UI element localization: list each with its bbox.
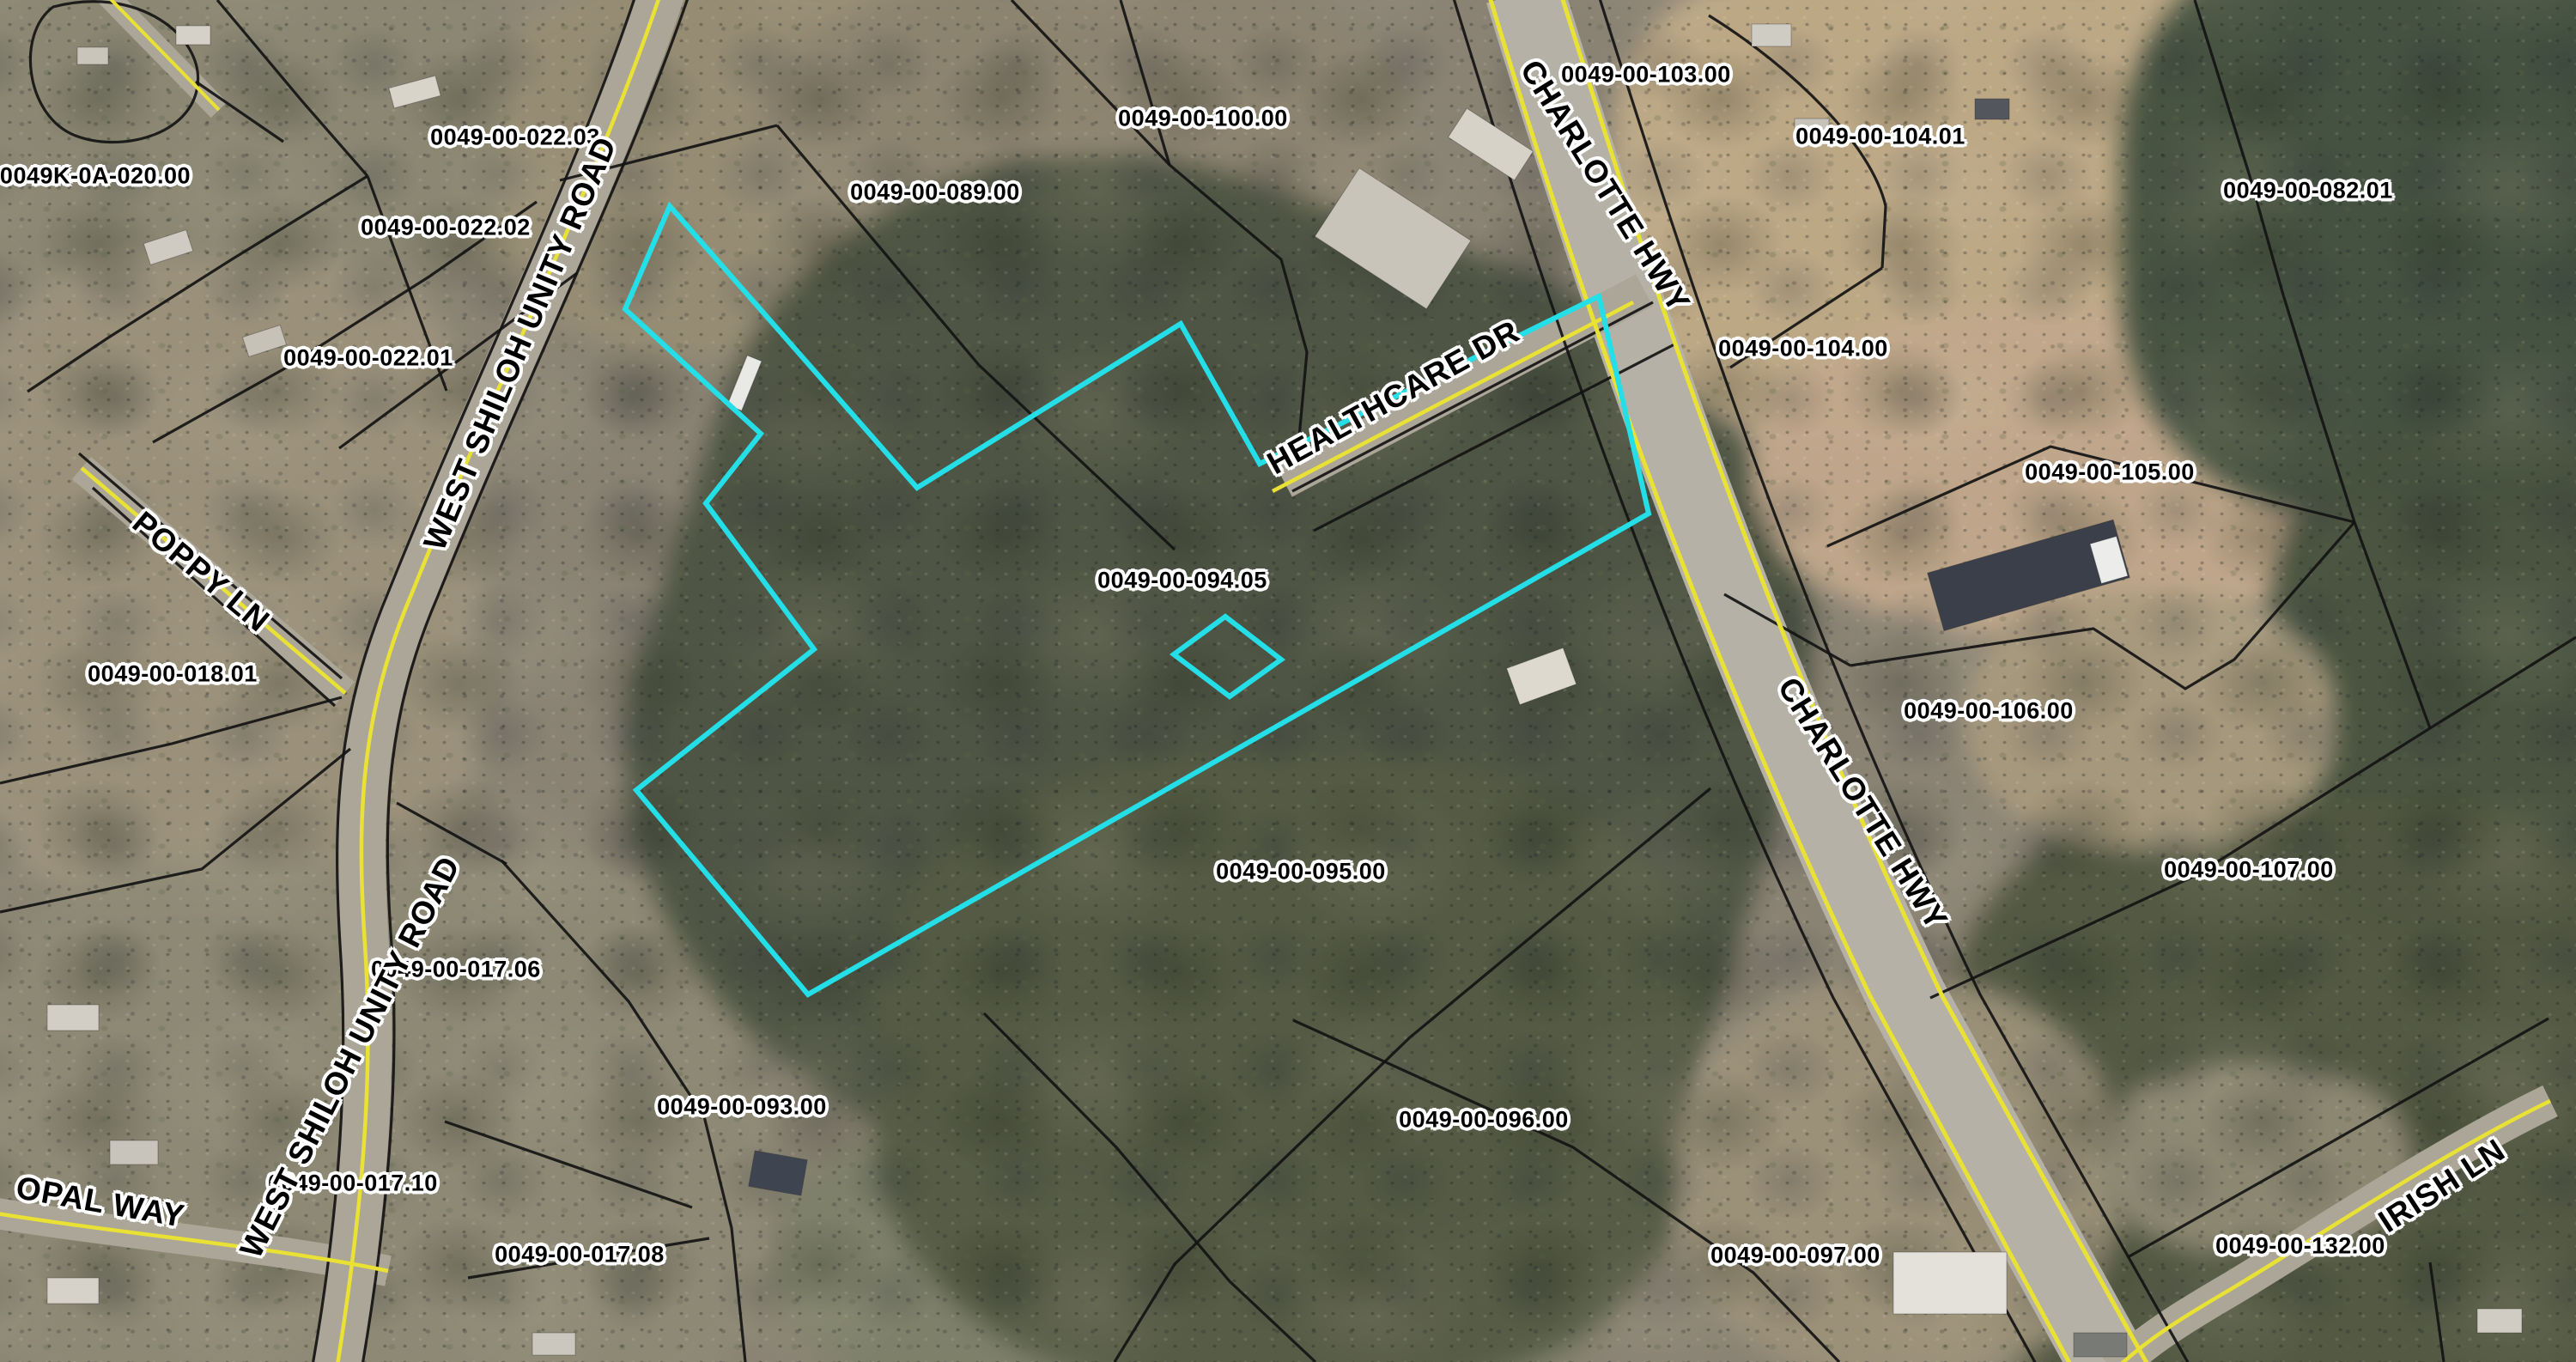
parcel-id-label: 0049-00-095.00 [1216, 859, 1386, 885]
road-name-label: OPAL WAY [14, 1170, 188, 1236]
road-name-label: HEALTHCARE DR [1261, 313, 1526, 482]
map-labels-layer: 0049-00-022.030049K-0A-020.000049-00-022… [0, 0, 2576, 1362]
parcel-id-label: 0049-00-100.00 [1118, 105, 1288, 131]
road-name-label: CHARLOTTE HWY [1513, 54, 1698, 319]
parcel-id-label: 0049-00-018.01 [88, 661, 258, 688]
parcel-id-label: 0049-00-096.00 [1399, 1106, 1569, 1133]
parcel-id-label: 0049-00-022.01 [283, 345, 453, 372]
parcel-id-label: 0049-00-017.08 [495, 1241, 665, 1268]
road-name-label: POPPY LN [125, 505, 276, 640]
road-name-label: WEST SHILOH UNITY ROAD [416, 131, 623, 556]
parcel-id-label: 0049-00-097.00 [1710, 1243, 1880, 1269]
map-canvas[interactable]: 0049-00-022.030049K-0A-020.000049-00-022… [0, 0, 2576, 1362]
parcel-id-label: 0049-00-132.00 [2215, 1233, 2385, 1260]
parcel-id-label: 0049-00-022.03 [430, 125, 600, 151]
parcel-id-label: 0049-00-105.00 [2025, 459, 2195, 486]
parcel-id-label: 0049-00-107.00 [2164, 857, 2334, 884]
parcel-id-label: 0049-00-104.00 [1718, 336, 1888, 362]
parcel-id-label: 0049K-0A-020.00 [0, 162, 191, 189]
road-name-label: WEST SHILOH UNITY ROAD [234, 850, 468, 1263]
parcel-id-label: 0049-00-106.00 [1904, 697, 2074, 724]
parcel-id-label: 0049-00-104.01 [1795, 123, 1965, 149]
parcel-id-label: 0049-00-103.00 [1561, 62, 1731, 88]
parcel-id-label: 0049-00-082.01 [2223, 178, 2393, 204]
parcel-id-label: 0049-00-093.00 [657, 1094, 827, 1121]
parcel-id-label: 0049-00-022.02 [361, 214, 531, 240]
road-name-label: IRISH LN [2372, 1132, 2512, 1240]
parcel-id-label: 0049-00-089.00 [850, 179, 1020, 205]
parcel-id-label: 0049-00-094.05 [1097, 567, 1267, 593]
